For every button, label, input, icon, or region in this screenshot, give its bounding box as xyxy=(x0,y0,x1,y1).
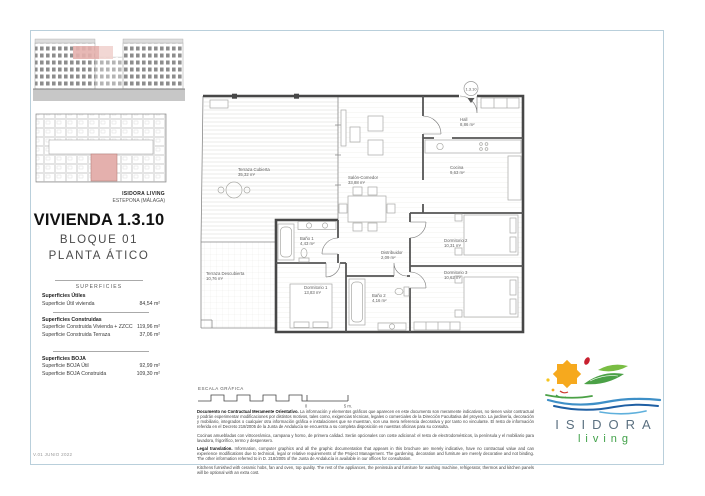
surface-label: Superficie Útil vivienda xyxy=(42,301,94,307)
scale-zero: 0 xyxy=(305,404,308,409)
logo-tagline: living xyxy=(540,433,666,445)
surface-row: Superficie BOJA Útil 92,99 m² xyxy=(42,363,160,369)
surfaces-divider-top xyxy=(55,280,143,281)
floor-subtitle: PLANTA ÁTICO xyxy=(25,250,173,262)
building-elevation xyxy=(33,31,185,107)
surfaces-header: SUPERFICIES xyxy=(25,284,173,290)
surfaces-section-title: Superficies BOJA xyxy=(42,356,160,362)
room-area: 33,88 m² xyxy=(348,180,366,185)
room-area: 13,83 m² xyxy=(304,290,322,295)
surface-label: Superficie BOJA Útil xyxy=(42,363,89,369)
isidora-logo-art xyxy=(540,350,666,420)
surfaces-section-title: Superficies Construidas xyxy=(42,317,160,323)
surface-value: 84,54 m² xyxy=(140,301,160,307)
surface-value: 109,30 m² xyxy=(137,371,160,377)
project-brand: ISIDORA LIVING ESTEPONA (MÁLAGA) xyxy=(35,191,165,205)
surface-row: Superficie Construida Terraza 37,06 m² xyxy=(42,332,160,338)
surface-label: Superficie BOJA Construida xyxy=(42,371,106,377)
unit-badge-label: 1.3.10 xyxy=(465,86,477,91)
room-area: 10,62 m² xyxy=(444,275,462,280)
surface-row: Superficie BOJA Construida 109,30 m² xyxy=(42,371,160,377)
logo-wordmark: ISIDORA xyxy=(540,417,666,432)
logo-red-accent-icon xyxy=(583,356,591,365)
logo-leaves-icon xyxy=(584,365,628,385)
plan-sheet: ISIDORA LIVING ESTEPONA (MÁLAGA) VIVIEND… xyxy=(0,0,705,496)
scale-label: ESCALA GRÁFICA xyxy=(198,385,244,391)
highlighted-unit-plan xyxy=(91,154,117,181)
surfaces-divider xyxy=(53,351,149,352)
floor-plan: 1.3.10 Terraza Cubierta 35,32 m² Terraza… xyxy=(198,80,530,342)
block-subtitle: BLOQUE 01 xyxy=(25,234,173,246)
legal-disclaimer: Documento no Contractual Meramente Orien… xyxy=(197,409,534,478)
surface-row: Superficie Construida Vivienda + ZZCC 11… xyxy=(42,324,160,330)
surface-value: 119,96 m² xyxy=(137,324,160,330)
room-area: 10,76 m² xyxy=(206,276,224,281)
room-area: 4,16 m² xyxy=(372,298,387,303)
site-key-plan xyxy=(33,110,169,187)
logo-waves-icon xyxy=(546,395,660,414)
room-area: 10,31 m² xyxy=(444,243,462,248)
surfaces-section-title: Superficies Útiles xyxy=(42,293,160,299)
surfaces-table: Superficies Útiles Superficie Útil vivie… xyxy=(42,293,160,378)
surface-label: Superficie Construida Terraza xyxy=(42,332,110,338)
surface-value: 92,99 m² xyxy=(140,363,160,369)
scale-max: 5 m. xyxy=(344,404,352,409)
scale-bar xyxy=(198,395,348,401)
highlighted-unit-elevation xyxy=(73,46,99,59)
surface-value: 37,06 m² xyxy=(140,332,160,338)
graphic-scale: ESCALA GRÁFICA 0 5 m. xyxy=(196,384,366,410)
page-title: VIVIENDA 1.3.10 xyxy=(25,211,173,230)
legal-text-en: Information, computer graphics and all t… xyxy=(197,446,534,461)
room-area: 2,09 m² xyxy=(381,255,396,260)
surface-row: Superficie Útil vivienda 84,54 m² xyxy=(42,301,160,307)
room-area: 8,86 m² xyxy=(460,122,475,127)
surfaces-divider xyxy=(53,312,149,313)
logo-sun-icon xyxy=(553,360,581,388)
version-stamp: V.01 JUNIO 2022 xyxy=(33,452,72,457)
room-area: 9,63 m² xyxy=(450,170,465,175)
legal-paragraph-1: Documento no Contractual Meramente Orien… xyxy=(197,409,534,429)
project-location: ESTEPONA (MÁLAGA) xyxy=(112,198,165,204)
room-area: 35,32 m² xyxy=(238,172,256,177)
room-area: 4,43 m² xyxy=(300,241,315,246)
legal-paragraph-4: Kitchens furnished with ceramic hobs, fa… xyxy=(197,465,534,475)
surface-label: Superficie Construida Vivienda + ZZCC xyxy=(42,324,133,330)
legal-paragraph-2: Cocinas amuebladas con vitrocerámica, ca… xyxy=(197,433,534,443)
legal-paragraph-3: Legal translation. Information, computer… xyxy=(197,446,534,461)
project-name: ISIDORA LIVING xyxy=(122,191,165,197)
